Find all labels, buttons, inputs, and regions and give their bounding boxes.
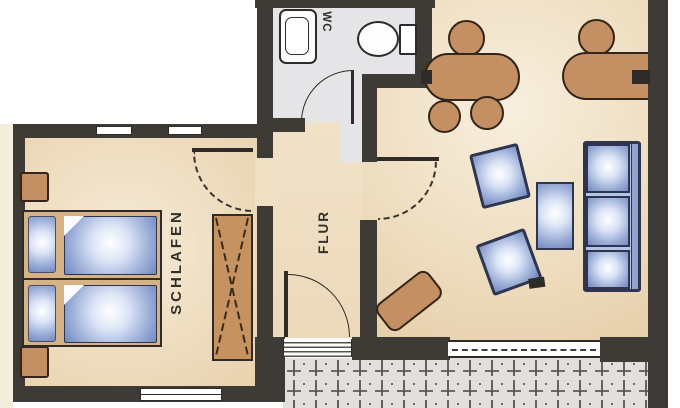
room-label-flur: FLUR: [317, 192, 333, 272]
toilet-bowl: [357, 21, 399, 57]
balcony-door-threshold: [283, 339, 352, 357]
bed-pillow: [28, 285, 56, 342]
nightstand: [20, 346, 49, 378]
dining-table-left: [424, 53, 520, 101]
stool: [428, 100, 461, 133]
stool: [470, 96, 504, 130]
wall-top-wc: [255, 0, 435, 8]
wall-south-right: [600, 337, 648, 362]
wall-kitchenette-left: [362, 74, 377, 162]
wall-bedroom-top: [13, 124, 259, 138]
wall-wc-left: [257, 0, 273, 124]
balcony-tile-pattern: [283, 358, 648, 408]
wall-bedroom-right-upper: [257, 124, 273, 158]
window-bedroom-north-2: [168, 126, 202, 135]
stool: [578, 19, 615, 56]
sofa-backrest: [631, 144, 638, 289]
sofa-cushion: [586, 196, 630, 247]
bed-pillow: [28, 216, 56, 273]
double-bed: [22, 210, 162, 347]
sofa-cushion: [586, 144, 630, 193]
side-chair: [536, 182, 574, 250]
room-label-wc: WC: [317, 2, 331, 42]
room-label-schlafen: SCHLAFEN: [169, 187, 187, 337]
sofa-cushion: [586, 250, 630, 289]
wardrobe: [212, 214, 253, 361]
wall-south-mid: [352, 337, 450, 360]
outside-ground-strip: [0, 124, 13, 408]
bed-blanket: [64, 285, 157, 343]
toilet-tank: [399, 24, 417, 55]
table-notch: [421, 70, 432, 84]
stool: [448, 20, 485, 57]
sink-basin: [285, 17, 309, 55]
floorplan-canvas: WC SCHLAFEN FLUR: [0, 0, 680, 408]
floor-bedroom-doorway: [255, 156, 275, 208]
bed-blanket: [64, 216, 157, 275]
wall-bedroom-se-corner: [255, 337, 285, 402]
bed-divider: [24, 278, 160, 280]
dining-table-right: [562, 52, 648, 100]
nightstand: [20, 172, 49, 202]
table-notch: [632, 70, 650, 84]
window-glazing-line: [452, 349, 596, 351]
wall-bedroom-right-lower: [257, 206, 273, 339]
sofa: [583, 141, 641, 292]
window-living-south: [448, 340, 600, 358]
floor-balcony: [283, 358, 648, 408]
window-bedroom-north-1: [96, 126, 132, 135]
wardrobe-cross: [214, 216, 250, 358]
sink: [279, 9, 317, 64]
window-bedroom-south: [140, 388, 222, 401]
wall-living-left: [360, 220, 377, 340]
wall-right: [648, 0, 668, 408]
